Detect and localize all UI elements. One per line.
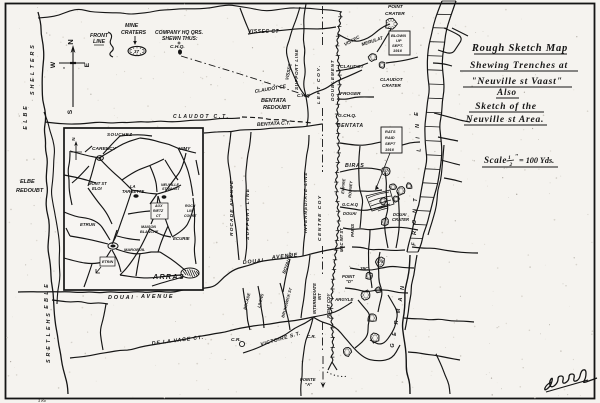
svg-text:E: E [44, 305, 50, 309]
svg-text:35C: 35C [360, 266, 369, 271]
svg-text:ST VAAST: ST VAAST [162, 187, 180, 191]
svg-text:SHEWN THUS:: SHEWN THUS: [162, 36, 198, 42]
svg-text:Shewing Trenches at: Shewing Trenches at [470, 60, 568, 71]
svg-text:Neuville st Area.: Neuville st Area. [465, 115, 544, 125]
svg-text:CARENCY: CARENCY [92, 146, 117, 152]
svg-text:A: A [398, 297, 404, 302]
svg-text:ELOI: ELOI [92, 186, 103, 191]
svg-text:"D": "D" [346, 279, 354, 284]
svg-text:ECURIE: ECURIE [173, 236, 191, 241]
svg-text:S: S [46, 359, 52, 363]
svg-text:SUPPORT LINE: SUPPORT LINE [245, 188, 251, 240]
svg-text:ARRAS: ARRAS [152, 273, 185, 281]
svg-text:S: S [30, 91, 36, 95]
svg-text:CLAUDOT C.T.: CLAUDOT C.T. [173, 114, 230, 120]
svg-text:ROCH: ROCH [185, 204, 196, 208]
svg-text:C.H.Q.: C.H.Q. [170, 44, 185, 50]
svg-text:CRATER: CRATER [382, 83, 402, 88]
svg-text:E: E [30, 78, 36, 82]
svg-text:O: O [412, 219, 418, 224]
svg-text:CLAUDOT: CLAUDOT [340, 64, 365, 70]
svg-text:L: L [44, 291, 50, 294]
svg-text:": " [515, 153, 519, 161]
svg-text:B: B [44, 298, 50, 302]
svg-text:G.CH.Q.: G.CH.Q. [338, 113, 357, 119]
svg-text:G.C.H.Q: G.C.H.Q [342, 202, 359, 207]
svg-text:POINT: POINT [388, 4, 404, 10]
svg-text:Rough Sketch Map: Rough Sketch Map [471, 43, 568, 54]
svg-text:W: W [50, 61, 57, 68]
svg-text:REDOUBT: REDOUBT [263, 105, 291, 111]
svg-text:1916: 1916 [393, 48, 403, 53]
svg-text:G: G [390, 343, 396, 348]
svg-text:R: R [30, 52, 36, 56]
svg-text:E: E [46, 346, 52, 350]
svg-text:VISSEC CT: VISSEC CT [248, 29, 280, 35]
svg-text:= 100 Yds.: = 100 Yds. [519, 156, 554, 165]
svg-text:COURT: COURT [184, 214, 197, 218]
svg-text:BLANCHE: BLANCHE [140, 230, 159, 234]
svg-text:LIN: LIN [187, 209, 193, 213]
svg-text:375: 375 [377, 260, 383, 264]
svg-text:MAC INT ST: MAC INT ST [339, 228, 344, 252]
svg-text:N: N [66, 39, 75, 45]
svg-text:E: E [23, 106, 29, 110]
svg-text:ETRIN: ETRIN [102, 260, 114, 264]
svg-text:LINE: LINE [93, 39, 105, 45]
svg-text:ROCADE AVENUE: ROCADE AVENUE [229, 180, 235, 236]
svg-text:INTERMEDIATE LINE: INTERMEDIATE LINE [303, 172, 308, 233]
svg-text:E: E [414, 112, 420, 116]
svg-text:TARGETTE: TARGETTE [122, 189, 144, 194]
svg-text:BENTATA: BENTATA [261, 98, 286, 104]
svg-text:S: S [30, 45, 36, 49]
svg-text:E: E [46, 326, 52, 330]
svg-text:RAID: RAID [385, 135, 395, 140]
svg-text:C.R.: C.R. [231, 337, 241, 343]
svg-text:CRATER: CRATER [385, 11, 405, 17]
svg-text:RIETZ: RIETZ [153, 209, 164, 213]
svg-text:1916: 1916 [385, 147, 395, 152]
svg-text:SUPPORT LINE: SUPPORT LINE [294, 48, 299, 90]
svg-text:37: 37 [134, 49, 139, 54]
svg-text:E: E [44, 284, 50, 288]
svg-text:L: L [23, 120, 29, 123]
svg-text:MAISON: MAISON [141, 225, 156, 229]
svg-text:MAROEUIL: MAROEUIL [124, 247, 146, 252]
svg-text:RIGHT COY: RIGHT COY [326, 293, 331, 318]
svg-text:E: E [84, 62, 91, 67]
svg-text:LEFT COY.: LEFT COY. [316, 64, 322, 104]
svg-text:ETRUN: ETRUN [80, 222, 96, 227]
svg-text:DOUBLEMENT: DOUBLEMENT [330, 59, 335, 101]
svg-text:AUX: AUX [154, 204, 163, 208]
svg-text:L: L [46, 333, 52, 336]
svg-text:FROGER: FROGER [340, 91, 361, 97]
svg-text:R: R [412, 231, 418, 235]
svg-text:MINE: MINE [125, 23, 139, 29]
svg-text:C.H.Q: C.H.Q [297, 93, 310, 98]
svg-text:DOUAI: DOUAI [343, 211, 357, 216]
svg-text:BENTATA: BENTATA [337, 123, 363, 129]
svg-text:DOUAI: DOUAI [108, 295, 135, 301]
svg-text:CENTRE COY: CENTRE COY [317, 194, 323, 241]
svg-text:H: H [46, 320, 52, 324]
svg-text:1 Kc: 1 Kc [38, 399, 47, 403]
svg-text:SEPT: SEPT [385, 141, 396, 146]
svg-text:R: R [46, 353, 52, 357]
svg-text:S: S [46, 313, 52, 317]
svg-text:"A": "A" [305, 382, 313, 387]
svg-text:CLAUDOT: CLAUDOT [380, 77, 404, 82]
svg-text:REDOUBT: REDOUBT [16, 188, 44, 194]
svg-text:Scale: Scale [484, 155, 507, 165]
svg-text:Sketch of the: Sketch of the [475, 102, 537, 112]
svg-text:PARIS: PARIS [350, 224, 355, 237]
svg-text:C.R.: C.R. [307, 334, 316, 339]
svg-text:INT: INT [317, 293, 322, 300]
svg-text:AVENUE: AVENUE [140, 294, 174, 300]
svg-text:L: L [30, 72, 36, 75]
svg-text:E: E [23, 126, 29, 130]
svg-text:H: H [30, 85, 36, 89]
svg-text:R: R [394, 320, 400, 324]
svg-text:CRATERS: CRATERS [121, 30, 147, 36]
svg-text:SOUCHEZ: SOUCHEZ [107, 132, 132, 137]
svg-text:N: N [71, 137, 76, 140]
svg-text:BIRAS: BIRAS [345, 163, 364, 169]
svg-text:RATS: RATS [385, 129, 396, 134]
svg-text:CRATER: CRATER [392, 217, 409, 222]
svg-text:VIMY: VIMY [179, 146, 191, 151]
svg-text:M: M [396, 308, 402, 313]
svg-text:E: E [392, 332, 398, 336]
svg-text:Also: Also [496, 87, 517, 97]
svg-text:B: B [23, 113, 29, 117]
svg-text:ELBE: ELBE [20, 179, 35, 185]
svg-text:"Neuville st Vaast": "Neuville st Vaast" [471, 76, 562, 87]
svg-text:E: E [30, 58, 36, 62]
svg-text:ARGYLE: ARGYLE [334, 297, 354, 302]
svg-text:S: S [67, 109, 74, 114]
